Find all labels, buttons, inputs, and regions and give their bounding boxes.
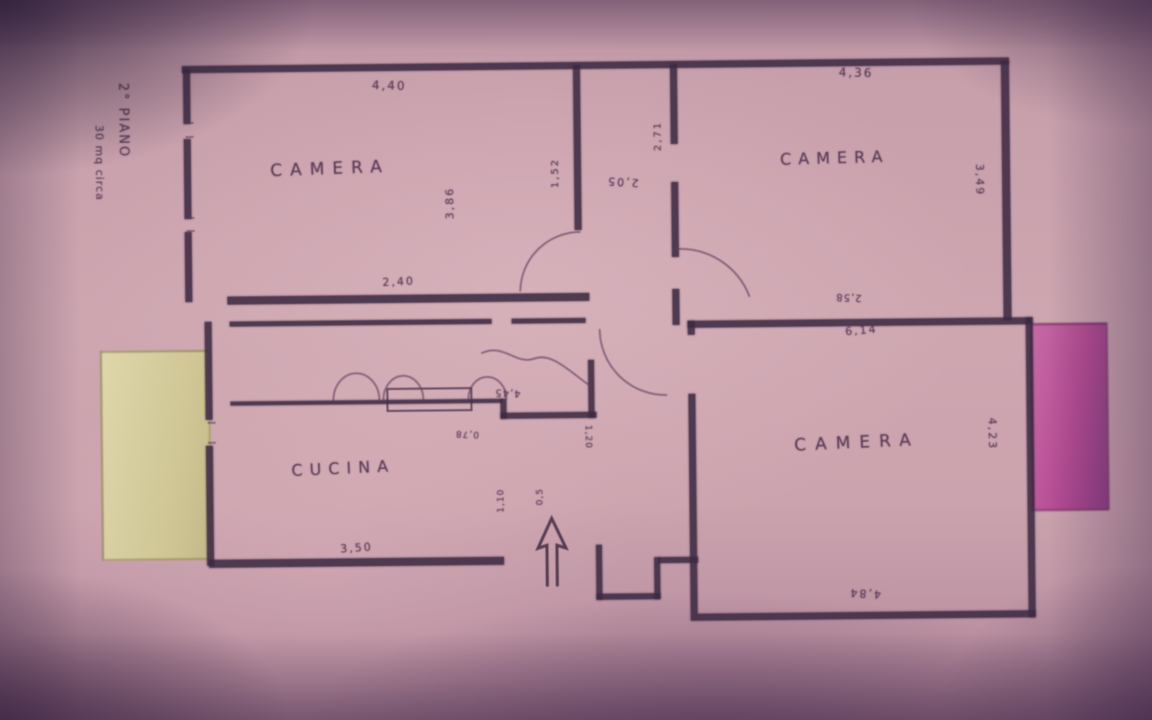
dim-camera-tl-depth: 3,86 xyxy=(443,187,456,220)
wall-hall-south xyxy=(501,412,597,419)
dim-camera-br-width-top: 6,14 xyxy=(845,323,878,339)
wall-left-a xyxy=(183,69,191,124)
kitchen-fixture-arc xyxy=(333,373,379,400)
window-tick xyxy=(208,442,216,444)
wall-left-b xyxy=(184,139,192,219)
wall-hall-step xyxy=(588,360,595,418)
dim-camera-tl-width: 4,40 xyxy=(372,78,407,93)
dim-camera-br-height: 4,23 xyxy=(986,418,999,451)
door-arc xyxy=(520,232,581,291)
dim-hall-left: 1,52 xyxy=(550,158,561,188)
wall-entry-b xyxy=(596,593,660,600)
dim-hall-south: 4,45 xyxy=(494,386,521,398)
dim-camera-br-top-small: 2,58 xyxy=(835,291,862,303)
floorplan-drawing: 2° PIANO 30 mq circa CAMERA CAMERA CAMER… xyxy=(0,0,1152,720)
wall-top xyxy=(182,57,1009,73)
dim-camera-tr-height: 3,49 xyxy=(973,164,986,197)
balcony-right xyxy=(1030,322,1110,511)
side-note-line2: 30 mq circa xyxy=(93,125,107,201)
balcony-left xyxy=(100,350,212,561)
kitchen-fixture-box xyxy=(386,387,472,412)
room-label-camera-top-right: CAMERA xyxy=(780,147,890,169)
wall-corridor-south-b xyxy=(512,318,586,324)
wall-centerright-a xyxy=(670,64,678,144)
wall-br-left xyxy=(688,394,697,621)
wall-kitchen-bottom xyxy=(209,557,504,568)
door-arc xyxy=(677,248,749,297)
window-tick xyxy=(187,230,195,232)
dim-entry-b: 0,5 xyxy=(535,488,545,505)
wall-left-c xyxy=(185,232,193,302)
wall-center-upper xyxy=(573,65,582,230)
window-tick xyxy=(186,217,194,219)
dim-entry-a: 1,10 xyxy=(496,489,506,513)
wall-right-upper xyxy=(1001,60,1012,320)
wall-centerright-c xyxy=(672,289,679,325)
wall-br-bottom xyxy=(698,610,1036,621)
floorplan-photo: 2° PIANO 30 mq circa CAMERA CAMERA CAMER… xyxy=(0,0,1152,720)
dim-camera-br-width-bottom: 4,84 xyxy=(848,586,881,601)
window-tick xyxy=(185,122,193,124)
room-label-cucina: CUCINA xyxy=(291,456,395,480)
dim-hall-small-b: 1,20 xyxy=(583,425,593,449)
room-label-camera-top-left: CAMERA xyxy=(270,157,390,181)
kitchen-squiggle xyxy=(482,349,590,387)
wall-hall-south-stub xyxy=(500,399,506,419)
wall-kitchen-left-a xyxy=(205,322,213,420)
dim-camera-tr-width: 4,36 xyxy=(839,65,874,80)
dim-hall-right: 2,71 xyxy=(653,121,664,151)
door-arc xyxy=(600,329,667,396)
wall-br-left-stub xyxy=(688,321,695,335)
wall-corridor-south-a xyxy=(230,319,492,327)
wall-corridor-north xyxy=(227,293,589,305)
room-label-camera-bottom-right: CAMERA xyxy=(794,430,920,456)
dim-cucina-width: 3,50 xyxy=(340,540,373,555)
wall-kitchen-left-b xyxy=(206,446,214,566)
dim-corridor-width: 2,40 xyxy=(382,275,415,289)
dim-hall-small-a: 0,78 xyxy=(455,428,479,439)
wall-entry-a xyxy=(596,545,603,600)
side-note-line1: 2° PIANO xyxy=(115,83,131,159)
wall-entry-c xyxy=(654,557,660,599)
window-tick xyxy=(186,136,194,138)
wall-centerright-b xyxy=(671,182,679,257)
dim-hall-mid: 2,05 xyxy=(606,174,639,189)
entrance-arrow-icon xyxy=(538,518,567,585)
window-tick xyxy=(208,422,216,424)
